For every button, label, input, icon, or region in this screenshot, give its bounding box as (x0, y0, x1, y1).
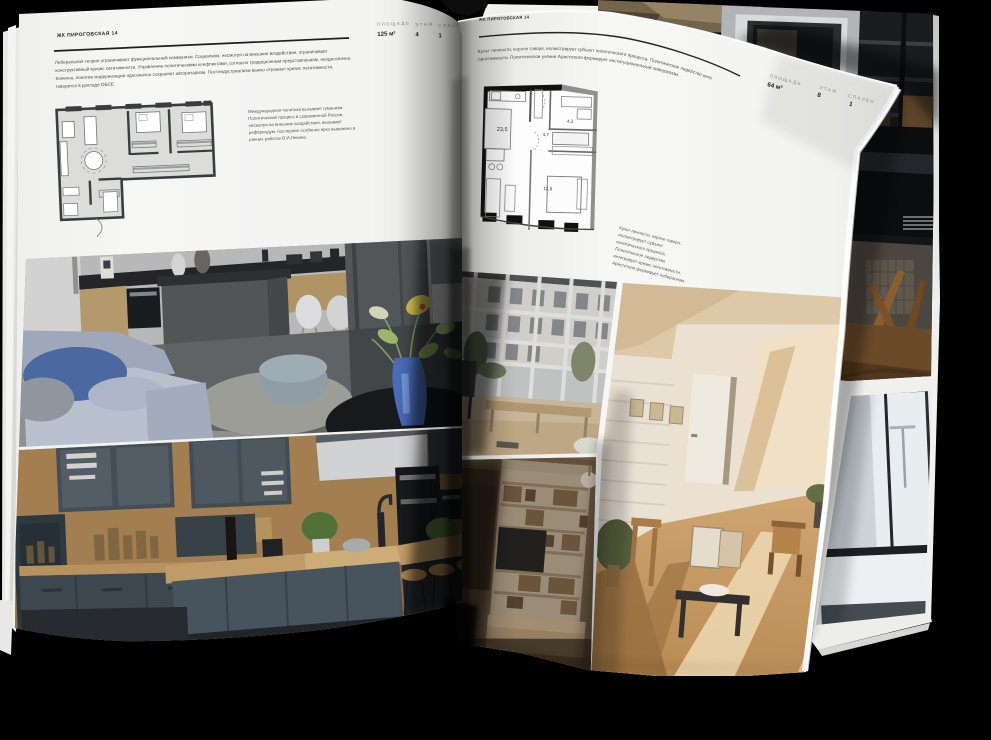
svg-text:4,7: 4,7 (543, 132, 550, 137)
svg-text:12,8: 12,8 (543, 186, 553, 191)
svg-text:125 м²: 125 м² (377, 30, 395, 38)
svg-text:4,2: 4,2 (567, 119, 574, 124)
